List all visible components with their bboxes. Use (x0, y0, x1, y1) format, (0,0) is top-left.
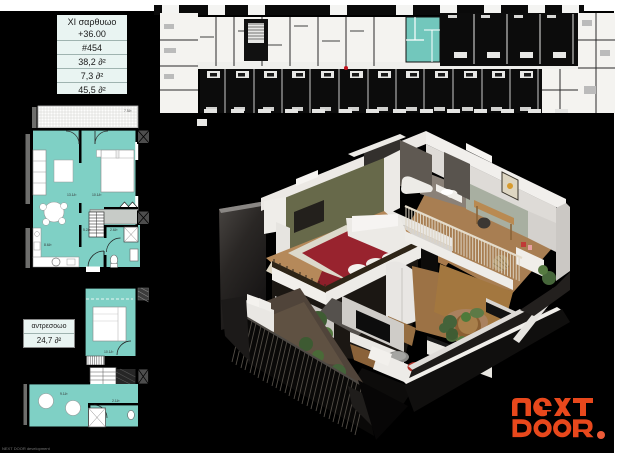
svg-text:8.6∂²: 8.6∂² (44, 243, 52, 247)
svg-text:10.1∂²: 10.1∂² (92, 193, 102, 197)
svg-text:2.6∂²: 2.6∂² (110, 228, 118, 232)
svg-text:5.2∂²: 5.2∂² (83, 228, 91, 232)
svg-text:2.1∂²: 2.1∂² (112, 399, 120, 403)
svg-text:7.5∂²: 7.5∂² (124, 109, 132, 113)
svg-text:13.1∂²: 13.1∂² (67, 193, 77, 197)
svg-text:10.1∂²: 10.1∂² (104, 350, 114, 354)
svg-text:9.1∂²: 9.1∂² (60, 392, 68, 396)
